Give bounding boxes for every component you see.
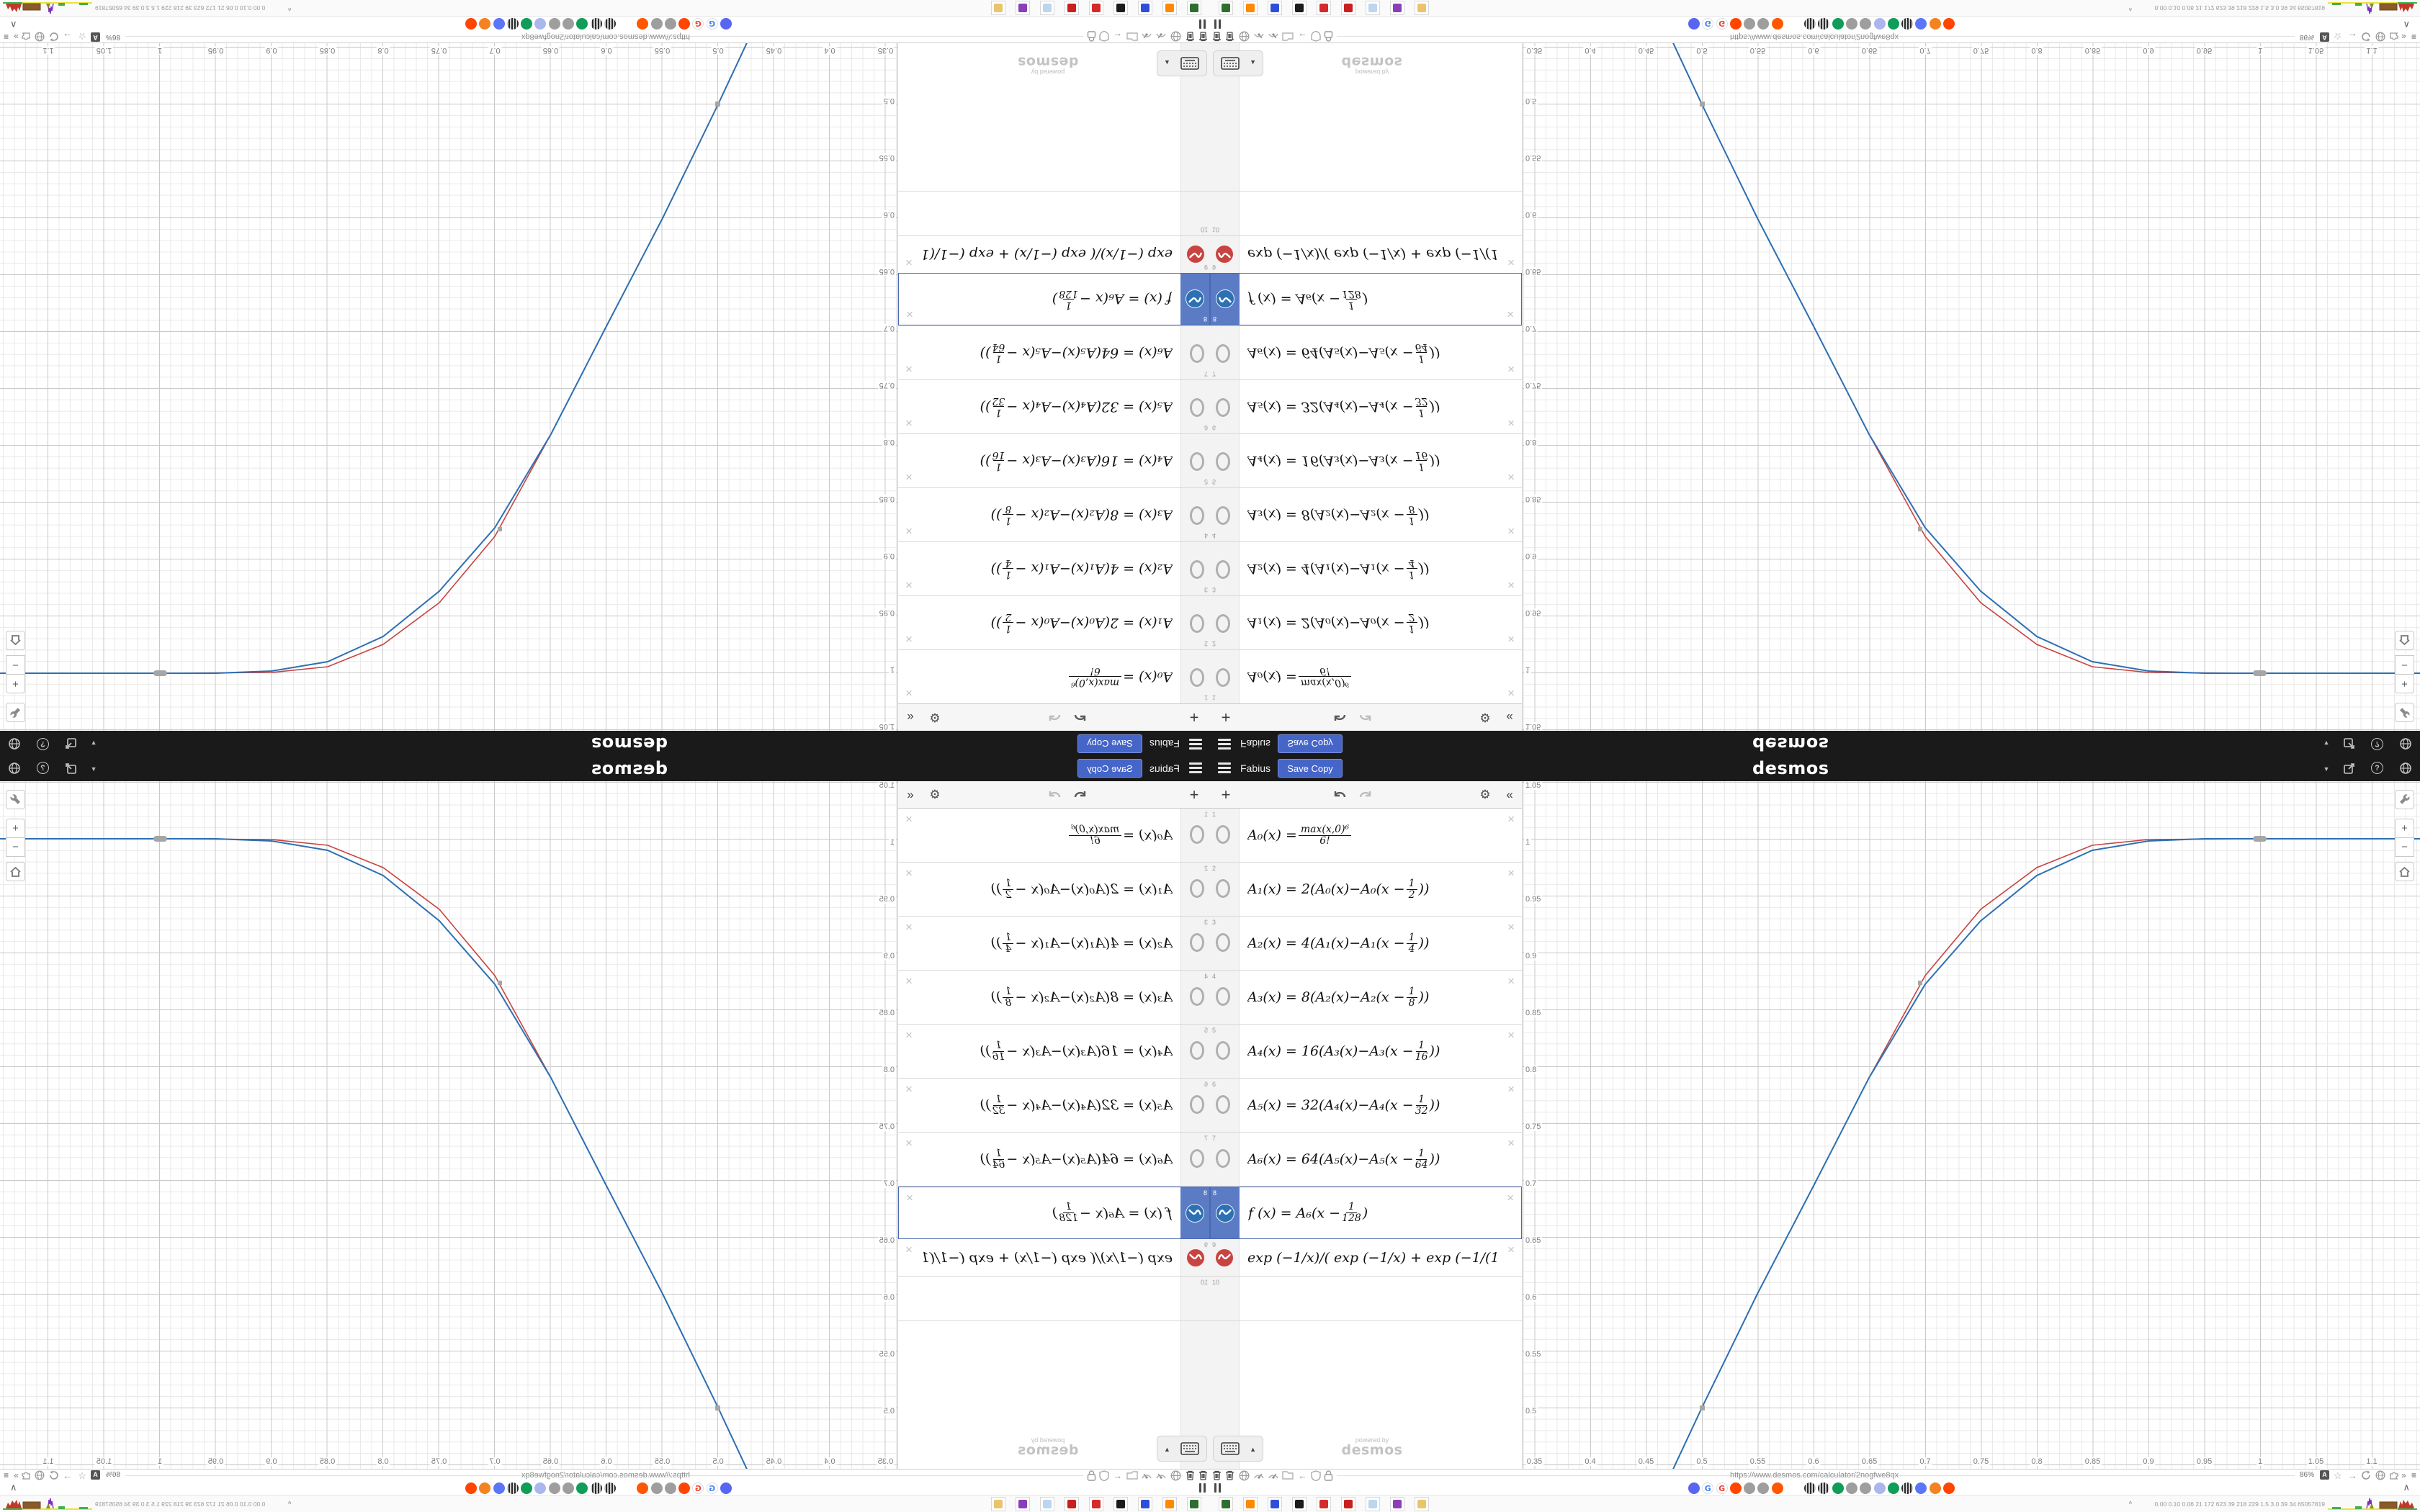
menu-icon[interactable]: ≡ [4,32,9,42]
gear-icon[interactable]: ⚙ [1476,786,1494,804]
gauge-icon[interactable] [1268,1470,1279,1481]
star-icon[interactable]: ☆ [2334,30,2342,42]
gear-icon[interactable]: ⚙ [1476,708,1494,726]
expression-icon-cell[interactable]: 2 [1181,596,1210,649]
tab-favicon-barrel[interactable] [1804,1482,1816,1494]
hidden-curve-icon[interactable] [1216,398,1230,417]
menu-icon[interactable]: ≡ [4,1470,9,1480]
taskbar-app-bw-app[interactable] [1113,1,1128,15]
globe-icon[interactable] [1239,1470,1250,1481]
wave-red-curve-icon[interactable] [1215,246,1234,264]
taskbar-app-terminal[interactable] [1219,1,1233,15]
caret-down-icon[interactable]: ▼ [2319,765,2334,780]
expression-formula[interactable]: A₆(x) = 64(A₅(x)−A₅(x − 164)) [920,326,1173,379]
hidden-curve-icon[interactable] [1216,933,1230,952]
expression-icon-cell[interactable]: 1 [1181,650,1210,703]
tab-favicon-gear-orange[interactable] [1930,18,1941,30]
expression-formula[interactable]: A₁(x) = 2(A₀(x)−A₀(x − 12)) [920,596,1173,649]
expression-row[interactable]: 3A₂(x) = 4(A₁(x)−A₁(x − 14))× [898,917,1210,971]
tab-favicon-barrel[interactable] [1804,18,1816,30]
expression-formula[interactable]: exp (−1/x)/( exp (−1/x) + exp (−1/(1 − x… [1247,1239,1500,1276]
delete-expression-icon[interactable]: × [905,363,913,375]
expression-formula[interactable]: A₅(x) = 32(A₄(x)−A₄(x − 132)) [1247,1079,1500,1132]
arrow-right-icon[interactable]: → [2348,31,2357,42]
expression-row[interactable]: 6A₅(x) = 32(A₄(x)−A₄(x − 132))× [898,1079,1210,1133]
expression-row[interactable]: 6A₅(x) = 32(A₄(x)−A₄(x − 132))× [1210,1079,1522,1133]
gauge-icon[interactable] [1253,31,1265,42]
delete-expression-icon[interactable]: × [905,1083,913,1095]
tab-favicon-gear-orange[interactable] [479,1482,490,1494]
gauge-icon[interactable] [1268,31,1279,42]
reload-icon[interactable] [2361,1470,2372,1481]
arrow-right-icon[interactable]: → [63,31,72,42]
tab-favicon-chat-blue[interactable] [493,18,505,30]
lock-icon[interactable] [1324,31,1335,42]
expression-icon-cell[interactable]: 5 [1210,1025,1239,1078]
font-extension-badge[interactable]: A [2320,1470,2329,1480]
expression-icon-cell[interactable]: 4 [1181,488,1210,541]
pause-icon[interactable] [1197,16,1206,29]
taskbar-app-floppy-64[interactable] [1268,1,1282,15]
tab-favicon-gray-app[interactable] [651,18,663,30]
graph-paper[interactable]: + − 1.0510.950.90.850.80.750.70.650.60.5… [0,43,897,731]
point-marker[interactable] [498,527,502,531]
delete-expression-icon[interactable]: × [905,921,913,933]
shield-icon[interactable] [1098,31,1109,42]
point-marker[interactable] [715,102,720,107]
taskbar-app-red-gear[interactable] [1317,1,1331,15]
hidden-curve-icon[interactable] [1216,1041,1230,1060]
point-marker[interactable] [1918,981,1922,985]
point-marker[interactable] [1700,102,1705,107]
expression-icon-cell[interactable]: 2 [1210,863,1239,916]
expression-row[interactable]: 9exp (−1/x)/( exp (−1/x) + exp (−1/(1 − … [1210,1239,1522,1277]
taskbar-app-palette[interactable] [991,1497,1005,1511]
globe-icon[interactable] [33,31,45,42]
point-marker[interactable] [498,981,502,985]
font-extension-badge[interactable]: A [2320,32,2329,42]
caret-down-icon[interactable]: ▼ [2319,732,2334,747]
hidden-curve-icon[interactable] [1190,1149,1204,1168]
puzzle-icon[interactable] [2389,1470,2401,1481]
hidden-curve-icon[interactable] [1190,344,1204,363]
expression-row[interactable]: 8f (x) = A₆(x − 1128)× [898,273,1210,325]
hidden-curve-icon[interactable] [1216,452,1230,471]
expression-row[interactable]: 10 [898,191,1210,235]
tab-favicon-google[interactable]: G [1716,1482,1728,1494]
point-marker[interactable] [2253,836,2267,842]
tab-favicon-reddit[interactable] [678,1482,690,1494]
expression-formula[interactable]: A₂(x) = 4(A₁(x)−A₁(x − 14)) [1247,917,1500,970]
keyboard-toggle-button[interactable]: ▲ [1157,1436,1207,1462]
tab-favicon-desmos-green[interactable] [576,18,588,30]
keyboard-toggle-button[interactable]: ▲ [1213,1436,1263,1462]
hidden-curve-icon[interactable] [1190,825,1204,844]
tab-favicon-gray-app[interactable] [1860,1482,1871,1494]
puzzle-icon[interactable] [19,1470,31,1481]
expression-formula[interactable]: A₆(x) = 64(A₅(x)−A₅(x − 164)) [1247,1133,1500,1186]
expression-icon-cell[interactable]: 10 [1181,192,1210,235]
delete-expression-icon[interactable]: × [905,256,913,269]
undo-icon[interactable] [1331,786,1348,804]
delete-expression-icon[interactable]: × [1507,579,1515,591]
delete-expression-icon[interactable]: × [906,1192,913,1204]
point-marker[interactable] [715,1405,720,1410]
taskbar-app-notepad[interactable] [1040,1497,1054,1511]
expression-icon-cell[interactable]: 9 [1210,236,1239,273]
expression-icon-cell[interactable]: 2 [1181,863,1210,916]
taskbar-app-red-gear[interactable] [1317,1497,1331,1511]
expression-formula[interactable]: A₃(x) = 8(A₂(x)−A₂(x − 18)) [1247,971,1500,1024]
point-marker[interactable] [153,836,167,842]
expression-icon-cell[interactable]: 1 [1181,809,1210,862]
arrow-left-icon[interactable]: ← [1298,31,1309,42]
star-icon[interactable]: ☆ [2334,1470,2342,1482]
tab-favicon-google[interactable]: G [692,1482,704,1494]
tab-favicon-chat-blue[interactable] [1915,18,1927,30]
expression-formula[interactable] [920,192,1173,235]
arrow-left-icon[interactable]: ← [1111,1470,1122,1481]
save-copy-button[interactable]: Save Copy [1278,759,1343,778]
tab-favicon-user-purple[interactable] [534,18,546,30]
expression-icon-cell[interactable]: 9 [1181,236,1210,273]
taskbar-app-purple-face[interactable] [1390,1497,1404,1511]
expression-formula[interactable]: A₃(x) = 8(A₂(x)−A₂(x − 18)) [920,488,1173,541]
taskbar-app-palette[interactable] [1415,1497,1429,1511]
wave-blue-curve-icon[interactable] [1216,290,1234,309]
trash-icon[interactable] [1196,1470,1208,1481]
zoom-in-button[interactable]: + [2395,819,2414,838]
globe-icon[interactable] [1239,31,1250,42]
tab-favicon-barrel[interactable] [591,18,602,30]
hidden-curve-icon[interactable] [1216,668,1230,687]
trash-icon[interactable] [1212,1470,1224,1481]
expression-row[interactable]: 5A₄(x) = 16(A₃(x)−A₃(x − 116))× [1210,433,1522,487]
graph-settings-wrench-button[interactable] [6,703,25,722]
gear-icon[interactable]: ⚙ [926,786,944,804]
expression-formula[interactable]: f (x) = A₆(x − 1128) [1248,274,1500,325]
delete-expression-icon[interactable]: × [1507,867,1515,879]
tab-favicon-gray-app[interactable] [563,18,574,30]
tab-favicon-google[interactable]: G [692,18,704,30]
reload-icon[interactable] [2361,31,2372,42]
expression-formula[interactable]: exp (−1/x)/( exp (−1/x) + exp (−1/(1 − x… [920,1239,1173,1276]
wave-red-curve-icon[interactable] [1186,1248,1205,1267]
keyboard-toggle-button[interactable]: ▲ [1213,50,1263,76]
delete-expression-icon[interactable]: × [1507,813,1515,825]
tab-favicon-reddit[interactable] [465,1482,477,1494]
tab-favicon-gray-app[interactable] [563,1482,574,1494]
tab-favicon-reddit[interactable] [465,18,477,30]
expression-formula[interactable]: f (x) = A₆(x − 1128) [920,274,1172,325]
folder-icon[interactable] [1282,31,1294,42]
tab-favicon-user-purple[interactable] [1874,18,1886,30]
hidden-curve-icon[interactable] [1190,879,1204,898]
tab-favicon-gear-orange[interactable] [1930,1482,1941,1494]
zoom-out-button[interactable]: − [6,655,25,675]
tab-favicon-desmos-green[interactable] [521,18,532,30]
hidden-curve-icon[interactable] [1216,560,1230,579]
tab-favicon-reddit[interactable] [637,18,648,30]
gauge-icon[interactable] [1155,31,1167,42]
save-copy-button[interactable]: Save Copy [1278,734,1343,753]
expression-icon-cell[interactable]: 10 [1210,1277,1239,1320]
wave-blue-curve-icon[interactable] [1216,1204,1234,1223]
expression-row[interactable]: 1A₀(x) = max(x,0)⁶6!× [898,809,1210,863]
hidden-curve-icon[interactable] [1190,933,1204,952]
help-icon[interactable]: ? [2371,762,2385,776]
graph-paper[interactable]: + − 1.0510.950.90.850.80.750.70.650.60.5… [1523,781,2420,1469]
hidden-curve-icon[interactable] [1216,344,1230,363]
expression-formula[interactable]: A₂(x) = 4(A₁(x)−A₁(x − 14)) [920,917,1173,970]
expression-row[interactable]: 7A₆(x) = 64(A₅(x)−A₅(x − 164))× [898,325,1210,379]
expression-row[interactable]: 9exp (−1/x)/( exp (−1/x) + exp (−1/(1 − … [898,235,1210,273]
puzzle-icon[interactable] [2389,31,2401,42]
delete-expression-icon[interactable]: × [905,1137,913,1149]
delete-expression-icon[interactable]: × [1507,363,1515,375]
save-copy-button[interactable]: Save Copy [1077,734,1142,753]
tab-favicon-google[interactable]: G [707,18,718,30]
expression-icon-cell[interactable]: 9 [1181,1239,1210,1276]
taskbar-app-purple-face[interactable] [1016,1,1030,15]
taskbar-app-bw-app[interactable] [1113,1497,1128,1511]
tab-favicon-gray-app[interactable] [1846,1482,1857,1494]
tab-favicon-gray-app[interactable] [1846,18,1857,30]
point-marker[interactable] [1918,527,1922,531]
taskbar-app-notepad[interactable] [1366,1497,1380,1511]
expression-icon-cell[interactable]: 7 [1181,326,1210,379]
graph-settings-wrench-button[interactable] [2395,790,2414,809]
expression-row[interactable]: 7A₆(x) = 64(A₅(x)−A₅(x − 164))× [1210,325,1522,379]
expression-formula[interactable]: A₁(x) = 2(A₀(x)−A₀(x − 12)) [1247,596,1500,649]
trash-icon[interactable] [1183,1470,1195,1481]
expression-icon-cell[interactable]: 6 [1181,1079,1210,1132]
expression-row[interactable]: 6A₅(x) = 32(A₄(x)−A₄(x − 132))× [1210,379,1522,433]
expression-row[interactable]: 7A₆(x) = 64(A₅(x)−A₅(x − 164))× [898,1133,1210,1187]
expression-formula[interactable]: A₄(x) = 16(A₃(x)−A₃(x − 116)) [1247,434,1500,487]
pause-icon[interactable] [1214,16,1223,29]
expression-icon-cell[interactable]: 4 [1210,971,1239,1024]
tab-favicon-gray-app[interactable] [665,1482,676,1494]
wave-blue-curve-icon[interactable] [1186,1204,1204,1223]
delete-expression-icon[interactable]: × [1507,525,1515,537]
expression-row[interactable]: 8f (x) = A₆(x − 1128)× [1210,1187,1522,1239]
tab-favicon-desmos-green[interactable] [521,1482,532,1494]
trash-icon[interactable] [1183,31,1195,42]
tab-favicon-discord[interactable] [720,1482,732,1494]
gauge-icon[interactable] [1253,1470,1265,1481]
expression-icon-cell[interactable]: 5 [1181,434,1210,487]
delete-expression-icon[interactable]: × [905,525,913,537]
tab-favicon-gray-app[interactable] [1757,1482,1769,1494]
save-copy-button[interactable]: Save Copy [1077,759,1142,778]
hidden-curve-icon[interactable] [1190,506,1204,525]
address-url[interactable]: https://www.desmos.com/calculator/2nogfw… [521,1471,690,1480]
delete-expression-icon[interactable]: × [1507,975,1515,987]
taskbar-app-red-gear[interactable] [1089,1497,1103,1511]
shield-icon[interactable] [1311,31,1322,42]
hidden-curve-icon[interactable] [1216,506,1230,525]
tab-favicon-discord[interactable] [1688,18,1700,30]
tab-favicon-reddit[interactable] [1943,18,1955,30]
arrow-left-icon[interactable]: ← [1111,31,1122,42]
tab-favicon-desmos-green[interactable] [576,1482,588,1494]
expression-formula[interactable] [1247,192,1500,235]
menu-icon[interactable] [1189,762,1202,774]
taskbar-app-notepad[interactable] [1366,1,1380,15]
expression-icon-cell[interactable]: 7 [1210,1133,1239,1186]
taskbar-app-palette[interactable] [991,1,1005,15]
expression-formula[interactable]: A₅(x) = 32(A₄(x)−A₄(x − 132)) [1247,380,1500,433]
taskbar-app-bw-app[interactable] [1292,1497,1307,1511]
tab-favicon-barrel[interactable] [591,1482,602,1494]
zoom-out-button[interactable]: − [6,837,25,857]
address-url[interactable]: https://www.desmos.com/calculator/2nogfw… [1730,32,1899,41]
zoom-in-button[interactable]: + [6,819,25,838]
zoom-out-button[interactable]: − [2395,655,2414,675]
tray-chevron-icon[interactable]: ∧ [10,19,17,30]
expression-icon-cell[interactable]: 8 [1211,274,1240,325]
expression-icon-cell[interactable]: 3 [1210,542,1239,595]
taskbar-app-red-gear[interactable] [1089,1,1103,15]
menu-icon[interactable] [1218,738,1231,750]
expression-icon-cell[interactable]: 1 [1210,650,1239,703]
hidden-curve-icon[interactable] [1216,614,1230,633]
graph-paper[interactable]: + − 1.0510.950.90.850.80.750.70.650.60.5… [0,781,897,1469]
delete-expression-icon[interactable]: × [905,867,913,879]
expression-formula[interactable]: A₄(x) = 16(A₃(x)−A₃(x − 116)) [1247,1025,1500,1078]
tab-favicon-chat-blue[interactable] [493,1482,505,1494]
expression-icon-cell[interactable]: 9 [1210,1239,1239,1276]
graph-settings-wrench-button[interactable] [2395,703,2414,722]
hidden-curve-icon[interactable] [1216,1149,1230,1168]
taskbar-app-floppy-64[interactable] [1138,1,1152,15]
tab-favicon-google[interactable]: G [1702,18,1713,30]
reload-icon[interactable] [48,31,59,42]
globe-icon[interactable] [2398,736,2413,750]
expression-icon-cell[interactable]: 7 [1210,326,1239,379]
expression-formula[interactable]: A₅(x) = 32(A₄(x)−A₄(x − 132)) [920,1079,1173,1132]
gear-icon[interactable]: ⚙ [926,708,944,726]
expression-row[interactable]: 2A₁(x) = 2(A₀(x)−A₀(x − 12))× [898,863,1210,917]
expression-row[interactable]: 10 [1210,191,1522,235]
expression-row[interactable]: 9exp (−1/x)/( exp (−1/x) + exp (−1/(1 − … [898,1239,1210,1277]
redo-icon[interactable] [1357,786,1374,804]
tab-favicon-barrel[interactable] [1901,18,1913,30]
chevrons-icon[interactable]: » [14,32,19,42]
expression-formula[interactable]: exp (−1/x)/( exp (−1/x) + exp (−1/(1 − x… [920,236,1173,273]
point-marker[interactable] [2253,670,2267,676]
globe-icon[interactable] [7,762,22,776]
tab-favicon-gray-app[interactable] [1744,18,1755,30]
expression-row[interactable]: 4A₃(x) = 8(A₂(x)−A₂(x − 18))× [1210,971,1522,1025]
share-icon[interactable] [63,762,78,776]
puzzle-icon[interactable] [19,31,31,42]
undo-icon[interactable] [1072,708,1089,726]
expression-icon-cell[interactable]: 7 [1181,1133,1210,1186]
expression-icon-cell[interactable]: 6 [1210,1079,1239,1132]
zoom-in-button[interactable]: + [6,674,25,693]
expression-formula[interactable]: A₄(x) = 16(A₃(x)−A₃(x − 116)) [920,434,1173,487]
expression-formula[interactable]: A₄(x) = 16(A₃(x)−A₃(x − 116)) [920,1025,1173,1078]
expression-formula[interactable]: A₀(x) = max(x,0)⁶6! [1247,650,1500,703]
star-icon[interactable]: ☆ [78,30,86,42]
undo-icon[interactable] [1072,786,1089,804]
expression-formula[interactable]: A₆(x) = 64(A₅(x)−A₅(x − 164)) [920,1133,1173,1186]
expression-icon-cell[interactable]: 5 [1181,1025,1210,1078]
trash-icon[interactable] [1225,31,1237,42]
tab-favicon-desmos-green[interactable] [1832,18,1844,30]
font-extension-badge[interactable]: A [91,1470,100,1480]
delete-expression-icon[interactable]: × [905,687,913,699]
tab-favicon-barrel[interactable] [1901,1482,1913,1494]
expression-row[interactable]: 2A₁(x) = 2(A₀(x)−A₀(x − 12))× [1210,595,1522,649]
expression-formula[interactable]: A₁(x) = 2(A₀(x)−A₀(x − 12)) [1247,863,1500,916]
collapse-panel-icon[interactable]: « [902,786,919,804]
tab-favicon-user-purple[interactable] [534,1482,546,1494]
pause-icon[interactable] [1214,1483,1223,1496]
zoom-out-button[interactable]: − [2395,837,2414,857]
delete-expression-icon[interactable]: × [905,417,913,429]
delete-expression-icon[interactable]: × [1507,1029,1515,1041]
expression-row[interactable]: 10 [898,1277,1210,1321]
gauge-icon[interactable] [1141,1470,1152,1481]
globe-icon[interactable] [1170,1470,1181,1481]
expression-icon-cell[interactable]: 8 [1211,1187,1240,1238]
tab-favicon-gray-app[interactable] [665,18,676,30]
arrow-left-icon[interactable]: ← [1298,1470,1309,1481]
redo-icon[interactable] [1046,708,1063,726]
tab-favicon-gray-app[interactable] [549,18,560,30]
font-extension-badge[interactable]: A [91,32,100,42]
delete-expression-icon[interactable]: × [905,1029,913,1041]
expression-row[interactable]: 1A₀(x) = max(x,0)⁶6!× [898,649,1210,703]
expression-icon-cell[interactable]: 3 [1181,917,1210,970]
expression-icon-cell[interactable]: 2 [1210,596,1239,649]
expression-row[interactable]: 6A₅(x) = 32(A₄(x)−A₄(x − 132))× [898,379,1210,433]
expression-formula[interactable]: f (x) = A₆(x − 1128) [920,1187,1172,1238]
expression-row[interactable]: 7A₆(x) = 64(A₅(x)−A₅(x − 164))× [1210,1133,1522,1187]
tab-favicon-barrel[interactable] [507,18,519,30]
taskbar-app-floppy-64[interactable] [1268,1497,1282,1511]
expression-row[interactable]: 1A₀(x) = max(x,0)⁶6!× [1210,809,1522,863]
expression-row[interactable]: 5A₄(x) = 16(A₃(x)−A₃(x − 116))× [1210,1025,1522,1079]
expression-icon-cell[interactable]: 1 [1210,809,1239,862]
keyboard-toggle-button[interactable]: ▲ [1157,50,1207,76]
hidden-curve-icon[interactable] [1216,1095,1230,1114]
share-icon[interactable] [63,736,78,750]
expression-row[interactable]: 2A₁(x) = 2(A₀(x)−A₀(x − 12))× [1210,863,1522,917]
taskbar-app-firefox[interactable] [1162,1,1177,15]
shield-icon[interactable] [1311,1470,1322,1481]
zoom-home-button[interactable] [6,631,25,650]
expression-icon-cell[interactable]: 4 [1181,971,1210,1024]
expression-icon-cell[interactable]: 6 [1181,380,1210,433]
taskbar-app-firefox[interactable] [1243,1,1258,15]
tab-favicon-google[interactable]: G [1716,18,1728,30]
delete-expression-icon[interactable]: × [905,579,913,591]
hidden-curve-icon[interactable] [1190,398,1204,417]
expression-icon-cell[interactable]: 8 [1180,274,1209,325]
help-icon[interactable]: ? [35,736,49,750]
expression-row[interactable]: 5A₄(x) = 16(A₃(x)−A₃(x − 116))× [898,433,1210,487]
point-marker[interactable] [153,670,167,676]
hidden-curve-icon[interactable] [1190,614,1204,633]
undo-icon[interactable] [1331,708,1348,726]
star-icon[interactable]: ☆ [78,1470,86,1482]
tab-favicon-google[interactable]: G [1702,1482,1713,1494]
expression-row[interactable]: 10 [1210,1277,1522,1321]
